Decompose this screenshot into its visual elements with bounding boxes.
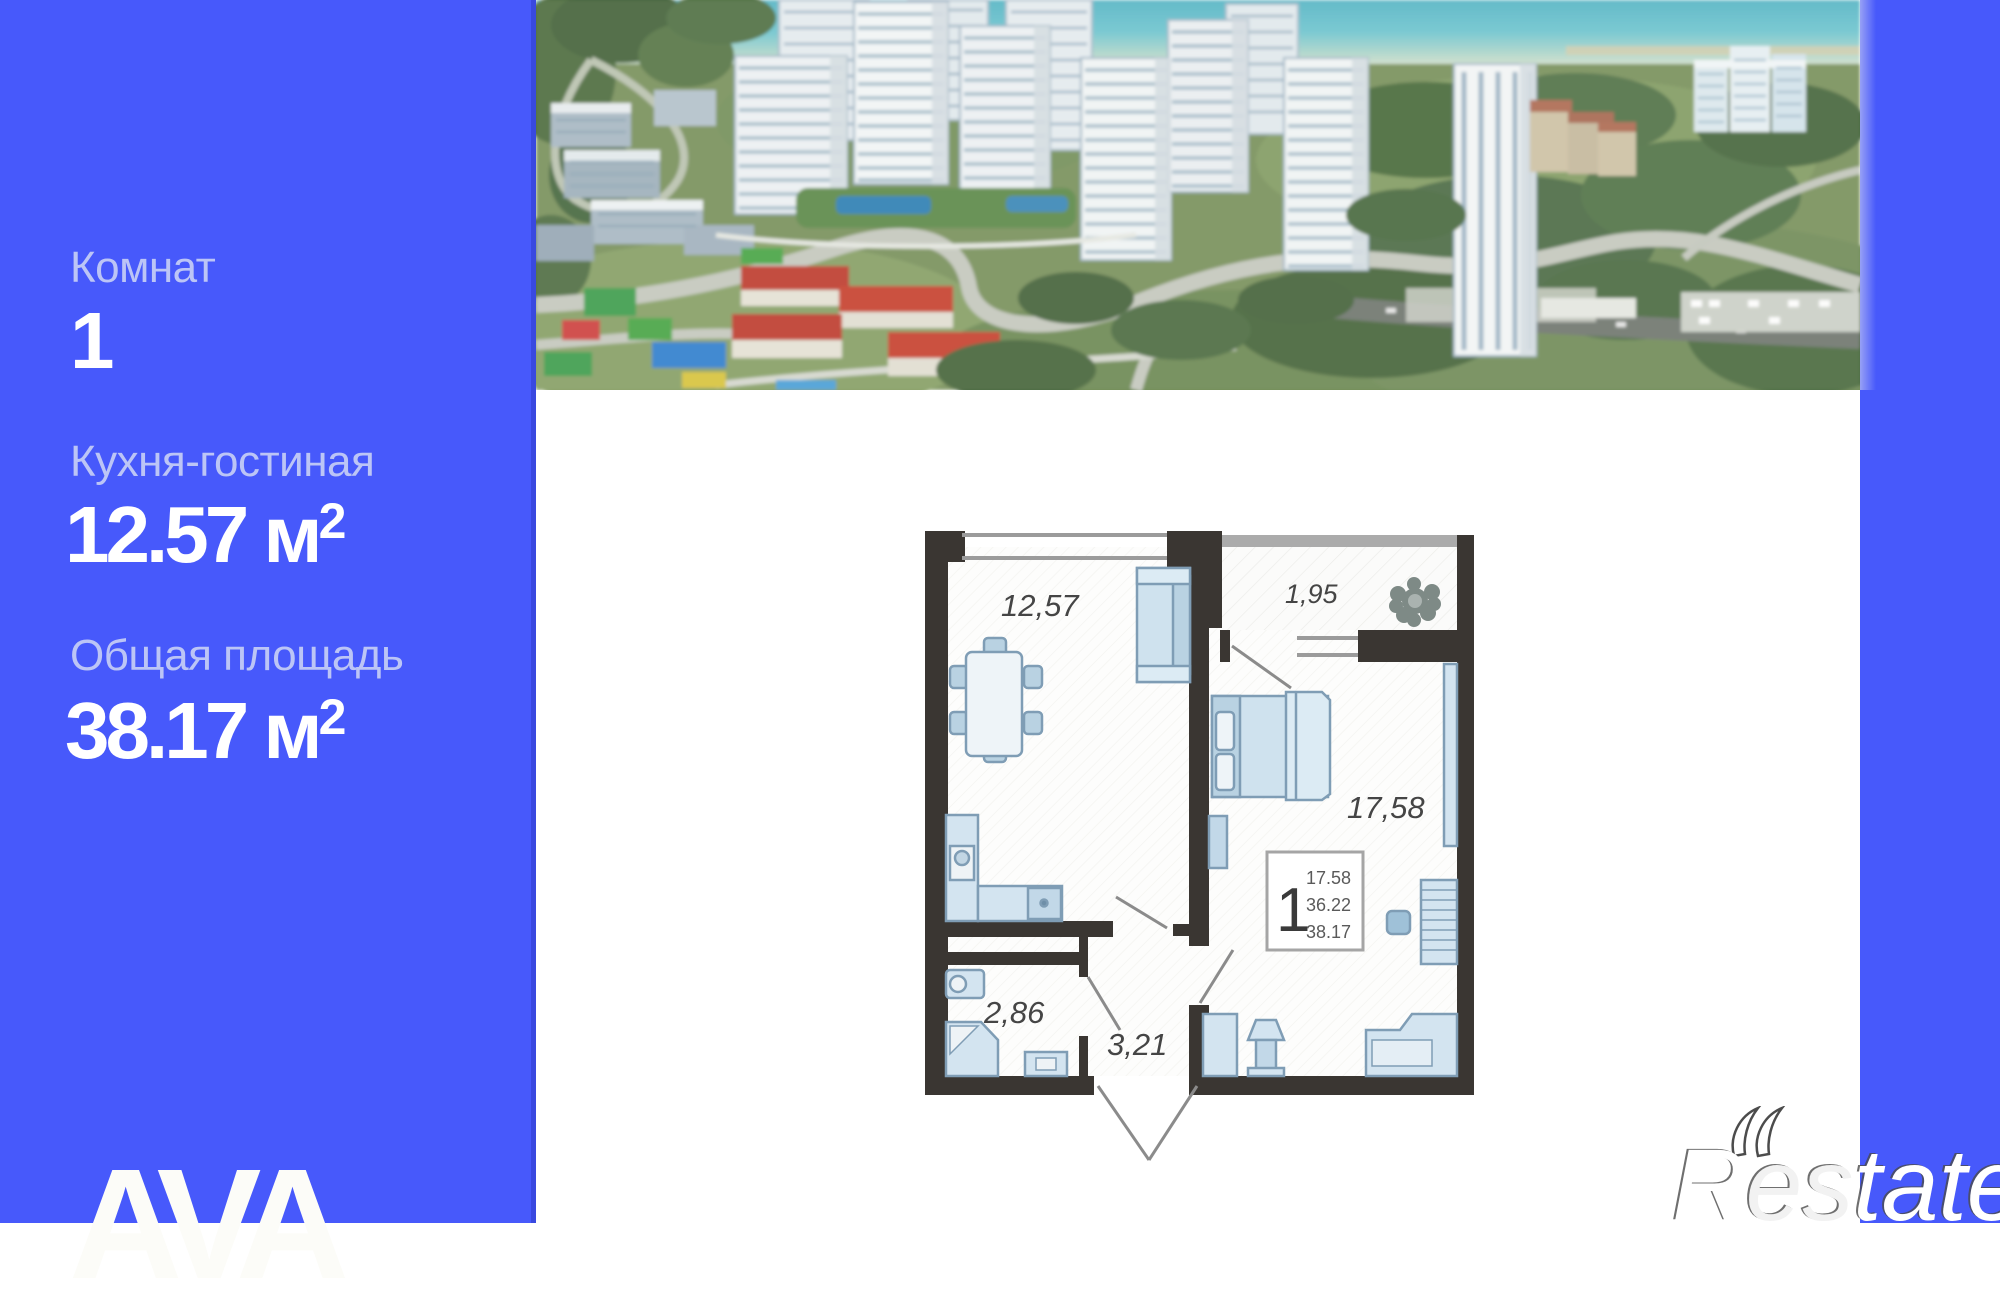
- svg-text:2,86: 2,86: [983, 995, 1045, 1030]
- svg-text:17.58: 17.58: [1306, 868, 1351, 888]
- svg-text:36.22: 36.22: [1306, 895, 1351, 915]
- svg-text:1,95: 1,95: [1285, 579, 1339, 609]
- svg-text:17,58: 17,58: [1347, 790, 1425, 825]
- svg-text:38.17: 38.17: [1306, 922, 1351, 942]
- svg-text:3,21: 3,21: [1107, 1027, 1167, 1062]
- svg-text:12,57: 12,57: [1001, 588, 1080, 623]
